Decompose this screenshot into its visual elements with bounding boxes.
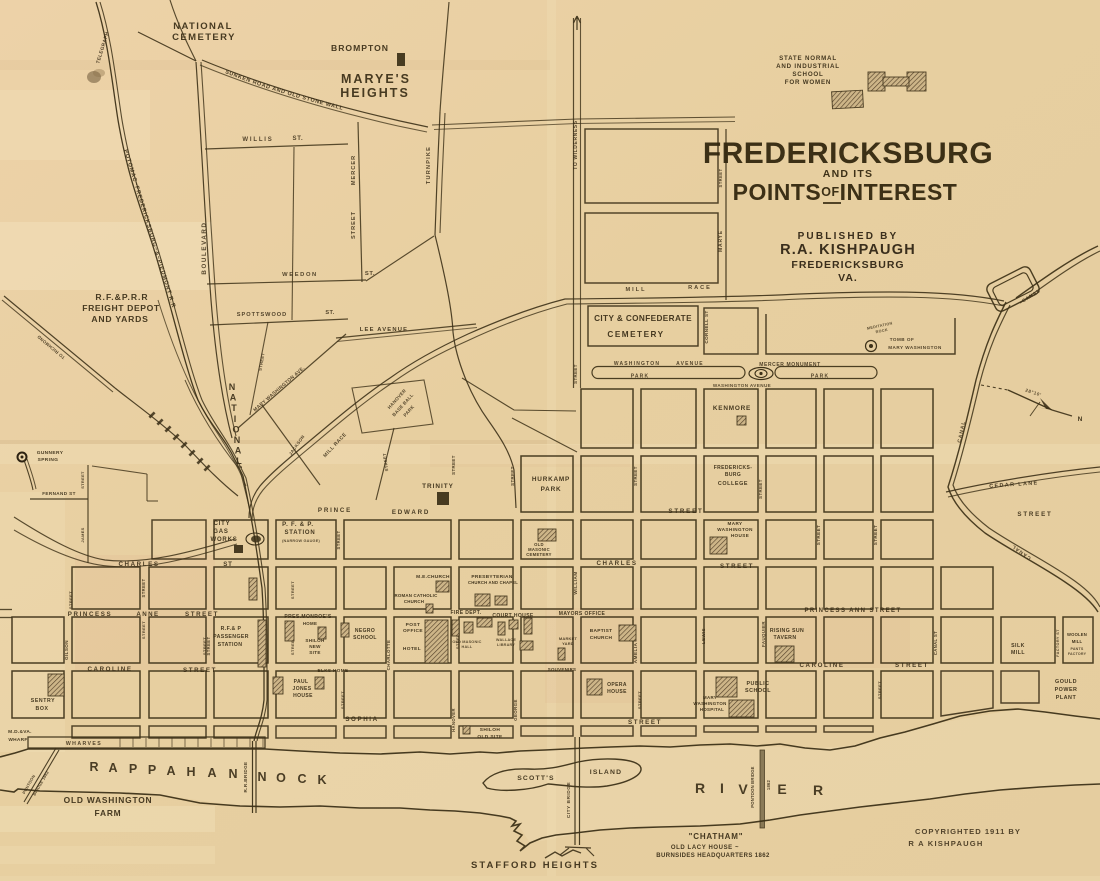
svg-text:R: R <box>695 780 705 796</box>
svg-text:ST.: ST. <box>292 136 303 142</box>
svg-text:WASHINGTON: WASHINGTON <box>717 527 753 532</box>
svg-text:CHURCH: CHURCH <box>404 599 424 604</box>
svg-text:SPOTTSWOOD: SPOTTSWOOD <box>237 312 287 318</box>
svg-text:H: H <box>186 765 195 779</box>
svg-text:CEMETERY: CEMETERY <box>607 330 664 339</box>
svg-text:(NARROW GAUGE): (NARROW GAUGE) <box>282 539 320 543</box>
svg-text:FREDERICKS-: FREDERICKS- <box>714 465 753 471</box>
svg-text:FACTORY ST: FACTORY ST <box>1056 629 1060 657</box>
svg-text:WASHINGTON: WASHINGTON <box>693 701 726 706</box>
svg-text:SOPHIA: SOPHIA <box>345 716 378 723</box>
svg-text:STREET: STREET <box>290 581 295 599</box>
svg-text:CHURCH AND CHAPEL: CHURCH AND CHAPEL <box>468 580 518 585</box>
svg-text:OLD WASHINGTON: OLD WASHINGTON <box>64 795 153 805</box>
svg-text:GILSON: GILSON <box>64 640 69 660</box>
svg-text:CEMETERY: CEMETERY <box>172 32 236 43</box>
svg-text:PANTS: PANTS <box>1071 647 1084 651</box>
svg-text:I: I <box>720 780 724 796</box>
svg-text:GEORGE: GEORGE <box>513 699 518 721</box>
svg-text:FAUQUIER: FAUQUIER <box>761 621 766 647</box>
svg-text:MERCER MONUMENT: MERCER MONUMENT <box>759 362 821 368</box>
svg-text:LEWIS: LEWIS <box>701 628 706 644</box>
svg-text:PASSENGER: PASSENGER <box>213 634 249 640</box>
svg-text:OLD MASONIC: OLD MASONIC <box>452 640 481 644</box>
svg-text:N: N <box>228 767 237 781</box>
svg-text:P. F. & P.: P. F. & P. <box>282 522 314 528</box>
svg-text:STREET: STREET <box>633 466 638 486</box>
svg-text:STREET: STREET <box>185 611 219 618</box>
svg-text:MARY WASHINGTON: MARY WASHINGTON <box>888 345 942 350</box>
svg-text:AND YARDS: AND YARDS <box>91 314 148 324</box>
svg-text:SCHOOL: SCHOOL <box>745 688 771 694</box>
svg-text:CAROLINE: CAROLINE <box>87 666 132 673</box>
svg-text:TAVERN: TAVERN <box>774 635 797 641</box>
svg-text:WOOLEN: WOOLEN <box>1067 632 1087 637</box>
svg-text:JONES: JONES <box>293 686 312 692</box>
svg-text:ISLAND: ISLAND <box>590 769 623 776</box>
svg-text:HOUSE: HOUSE <box>607 689 627 695</box>
svg-text:CHARLES: CHARLES <box>596 560 637 567</box>
svg-text:MARYE: MARYE <box>718 230 724 252</box>
svg-text:STREET: STREET <box>141 578 146 597</box>
svg-text:MARY: MARY <box>703 695 717 700</box>
svg-text:LIBRARY: LIBRARY <box>497 643 515 647</box>
svg-text:"CHATHAM": "CHATHAM" <box>689 832 744 841</box>
svg-text:R.F.& P: R.F.& P <box>221 626 242 632</box>
svg-text:TOMB OF: TOMB OF <box>890 337 915 342</box>
svg-text:STATION: STATION <box>284 530 315 536</box>
svg-text:BOULEVARD: BOULEVARD <box>201 221 208 274</box>
svg-text:JAMES: JAMES <box>80 527 85 542</box>
svg-text:STATE NORMAL: STATE NORMAL <box>779 55 837 62</box>
svg-text:SHILOH: SHILOH <box>480 727 501 733</box>
svg-text:STREET: STREET <box>895 662 929 669</box>
svg-text:MILL: MILL <box>625 287 646 293</box>
svg-text:STREET: STREET <box>718 168 723 187</box>
svg-text:COLLEGE: COLLEGE <box>718 481 748 487</box>
svg-text:TO WILDERNESS: TO WILDERNESS <box>573 120 579 169</box>
svg-text:R.F.&P.R.R: R.F.&P.R.R <box>95 292 148 302</box>
svg-text:STREET: STREET <box>183 667 217 674</box>
svg-text:CORNELL ST: CORNELL ST <box>704 310 709 343</box>
svg-text:POST: POST <box>406 622 421 628</box>
svg-text:STREET: STREET <box>637 691 642 709</box>
svg-text:R.A. KISHPAUGH: R.A. KISHPAUGH <box>780 242 916 258</box>
svg-text:FREDERICKSBURG: FREDERICKSBURG <box>791 259 904 271</box>
svg-text:ANNE: ANNE <box>136 611 159 618</box>
svg-text:STREET: STREET <box>351 211 357 239</box>
svg-text:RACE: RACE <box>688 285 712 291</box>
svg-text:OLD LACY HOUSE ~: OLD LACY HOUSE ~ <box>671 845 739 851</box>
svg-text:HEIGHTS: HEIGHTS <box>340 86 410 100</box>
svg-text:HOUSE: HOUSE <box>731 533 749 538</box>
svg-text:PLANT: PLANT <box>1056 695 1077 701</box>
svg-text:GUNNERY: GUNNERY <box>37 450 64 456</box>
svg-text:TRINITY: TRINITY <box>422 483 454 490</box>
svg-text:P: P <box>148 763 156 777</box>
svg-text:WORKS: WORKS <box>211 537 238 543</box>
svg-text:FREDERICKSBURG: FREDERICKSBURG <box>703 137 993 170</box>
svg-text:PARK: PARK <box>631 374 650 380</box>
svg-text:OPERA: OPERA <box>607 682 627 688</box>
svg-text:M.E.CHURCH: M.E.CHURCH <box>416 574 450 580</box>
svg-text:SCOTT'S: SCOTT'S <box>517 775 555 782</box>
svg-text:PAUL: PAUL <box>294 679 309 685</box>
svg-text:WHARVES: WHARVES <box>66 741 102 747</box>
svg-text:RISING SUN: RISING SUN <box>770 628 804 634</box>
svg-text:STREET: STREET <box>141 621 146 639</box>
svg-text:COPYRIGHTED 1911 BY: COPYRIGHTED 1911 BY <box>915 827 1021 836</box>
svg-text:CANAL ST: CANAL ST <box>933 631 938 655</box>
svg-text:STREET: STREET <box>451 455 456 475</box>
svg-text:ST.: ST. <box>325 310 334 316</box>
svg-text:EDWARD: EDWARD <box>392 509 430 516</box>
svg-text:VA.: VA. <box>838 272 858 284</box>
svg-text:NEW: NEW <box>309 644 321 649</box>
svg-text:PRES.MONROE'S: PRES.MONROE'S <box>284 614 331 620</box>
svg-text:WEEDON: WEEDON <box>282 272 318 278</box>
svg-text:HURKAMP: HURKAMP <box>532 476 570 483</box>
svg-text:STREET: STREET <box>668 508 703 515</box>
svg-text:R A KISHPAUGH: R A KISHPAUGH <box>908 839 983 848</box>
svg-text:PRINCESS: PRINCESS <box>68 611 112 618</box>
svg-text:CHURCH: CHURCH <box>590 635 613 641</box>
svg-text:BURG: BURG <box>725 472 741 478</box>
svg-text:R: R <box>813 782 823 798</box>
svg-text:STREET: STREET <box>758 479 763 499</box>
svg-text:STREET: STREET <box>573 364 578 384</box>
svg-text:SOUVENIRS: SOUVENIRS <box>548 667 577 672</box>
svg-text:FACTORY: FACTORY <box>1068 652 1087 656</box>
svg-text:GOULD: GOULD <box>1055 679 1077 685</box>
svg-text:V: V <box>738 781 748 797</box>
svg-text:STREET: STREET <box>336 530 341 549</box>
svg-text:SITE: SITE <box>309 650 320 655</box>
svg-text:A: A <box>207 766 216 780</box>
svg-text:PARK: PARK <box>811 374 830 380</box>
svg-text:MARYE'S: MARYE'S <box>341 72 411 86</box>
svg-text:FARM: FARM <box>95 808 122 818</box>
svg-text:PRINCE: PRINCE <box>318 507 352 514</box>
svg-text:POINTSOFINTEREST: POINTSOFINTEREST <box>733 179 958 205</box>
svg-text:POWER: POWER <box>1055 687 1078 693</box>
svg-text:HOSPITAL: HOSPITAL <box>700 707 724 712</box>
svg-text:STAFFORD HEIGHTS: STAFFORD HEIGHTS <box>471 860 599 871</box>
svg-text:CAROLINE: CAROLINE <box>799 662 844 669</box>
svg-text:CITY & CONFEDERATE: CITY & CONFEDERATE <box>594 314 692 323</box>
svg-text:SHILOH: SHILOH <box>305 638 325 643</box>
svg-text:MERCER: MERCER <box>351 155 357 185</box>
svg-text:HOUSE: HOUSE <box>293 693 313 699</box>
svg-text:WHARF: WHARF <box>8 737 27 743</box>
svg-text:STREET: STREET <box>202 637 207 655</box>
svg-text:AVENUE: AVENUE <box>676 361 704 367</box>
svg-text:MILL: MILL <box>1011 650 1025 656</box>
svg-text:STREET: STREET <box>873 525 878 546</box>
svg-text:TURNPIKE: TURNPIKE <box>426 146 432 184</box>
svg-text:NEGRO: NEGRO <box>355 628 375 634</box>
svg-text:AMELIA: AMELIA <box>633 642 639 663</box>
svg-text:HOME: HOME <box>303 621 317 626</box>
svg-text:WASHINGTON AVENUE: WASHINGTON AVENUE <box>713 383 771 388</box>
svg-text:STREET: STREET <box>720 563 754 570</box>
svg-text:PARK: PARK <box>541 486 562 493</box>
svg-text:MAYORS OFFICE: MAYORS OFFICE <box>559 611 606 617</box>
svg-text:WASHINGTON: WASHINGTON <box>614 361 660 367</box>
svg-text:SCHOOL: SCHOOL <box>353 635 377 641</box>
svg-text:CEMETERY: CEMETERY <box>526 552 552 557</box>
svg-text:K: K <box>317 773 326 787</box>
svg-text:A: A <box>108 761 117 775</box>
svg-text:STREET: STREET <box>628 719 662 726</box>
svg-text:ELKS HOME: ELKS HOME <box>318 668 349 673</box>
svg-text:CITY BRIDGE: CITY BRIDGE <box>566 782 572 819</box>
svg-text:FIRE DEPT.: FIRE DEPT. <box>451 610 482 616</box>
svg-text:WILLIAM: WILLIAM <box>573 571 579 594</box>
svg-text:1862: 1862 <box>766 779 771 790</box>
svg-text:E: E <box>777 781 786 797</box>
svg-text:WILLIS: WILLIS <box>242 137 273 143</box>
svg-text:CHARLOTTE: CHARLOTTE <box>386 640 391 671</box>
svg-text:M.D.&VA.: M.D.&VA. <box>8 729 32 735</box>
svg-text:MILL: MILL <box>1072 639 1083 644</box>
svg-text:SPRING: SPRING <box>38 457 59 463</box>
svg-text:BROMPTON: BROMPTON <box>331 43 389 53</box>
svg-text:BURNSIDES HEADQUARTERS 1862: BURNSIDES HEADQUARTERS 1862 <box>656 853 770 859</box>
svg-text:PUBLISHED BY: PUBLISHED BY <box>798 231 899 242</box>
svg-text:FREIGHT DEPOT: FREIGHT DEPOT <box>82 303 160 313</box>
svg-text:FOR WOMEN: FOR WOMEN <box>785 79 831 86</box>
svg-text:MARY: MARY <box>728 521 743 526</box>
svg-text:STREET: STREET <box>1017 511 1052 518</box>
svg-text:HANOVER: HANOVER <box>451 708 456 732</box>
svg-text:WALLACE: WALLACE <box>496 638 516 642</box>
svg-text:CITY: CITY <box>214 521 231 527</box>
svg-text:OLD SITE: OLD SITE <box>477 734 503 740</box>
svg-text:A: A <box>166 764 175 778</box>
svg-text:HOTEL: HOTEL <box>403 646 421 652</box>
svg-text:STREET: STREET <box>80 471 85 489</box>
svg-text:R: R <box>89 760 98 774</box>
svg-text:FERNAND ST: FERNAND ST <box>42 491 76 496</box>
svg-text:PONTOON BRIDGE: PONTOON BRIDGE <box>750 766 755 807</box>
svg-text:ST: ST <box>223 561 233 568</box>
svg-text:BAPTIST: BAPTIST <box>590 628 613 634</box>
svg-text:STREET: STREET <box>816 525 821 546</box>
svg-text:LEE AVENUE: LEE AVENUE <box>360 327 408 333</box>
svg-text:OFFICE: OFFICE <box>403 628 423 634</box>
svg-text:STREET: STREET <box>510 466 515 486</box>
svg-text:AND INDUSTRIAL: AND INDUSTRIAL <box>776 63 840 70</box>
svg-text:N: N <box>1078 416 1083 423</box>
svg-text:BOX: BOX <box>35 706 48 712</box>
svg-text:STREET: STREET <box>68 591 73 609</box>
svg-text:PRINCESS ANN STREET: PRINCESS ANN STREET <box>804 608 901 614</box>
svg-text:O: O <box>276 771 286 785</box>
svg-text:HALL: HALL <box>462 645 473 649</box>
svg-text:N: N <box>257 770 266 784</box>
svg-text:PUBLIC: PUBLIC <box>746 681 769 687</box>
svg-text:STATION: STATION <box>218 642 243 648</box>
svg-text:SCHOOL: SCHOOL <box>792 71 823 78</box>
svg-text:CHARLES: CHARLES <box>118 561 159 568</box>
svg-text:STREET: STREET <box>877 681 882 699</box>
svg-text:SENTRY: SENTRY <box>31 698 55 704</box>
svg-text:KENMORE: KENMORE <box>713 405 751 412</box>
svg-text:STREET: STREET <box>340 691 345 709</box>
svg-text:GAS: GAS <box>213 529 228 535</box>
svg-text:SILK: SILK <box>1011 643 1025 649</box>
svg-text:R.R.BRIDGE: R.R.BRIDGE <box>243 761 248 792</box>
svg-text:C: C <box>297 772 306 786</box>
svg-text:YARD: YARD <box>562 641 574 646</box>
svg-text:P: P <box>129 762 137 776</box>
svg-text:ROMAN CATHOLIC: ROMAN CATHOLIC <box>395 593 439 598</box>
